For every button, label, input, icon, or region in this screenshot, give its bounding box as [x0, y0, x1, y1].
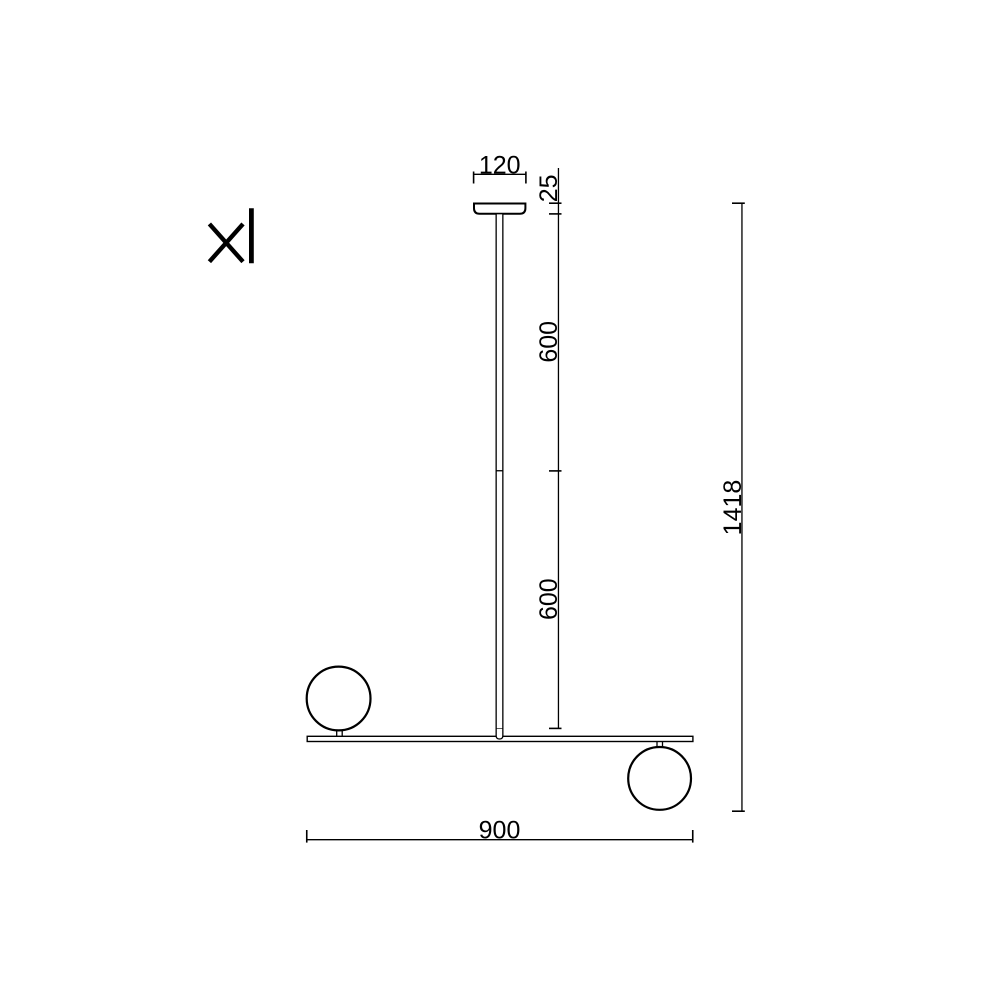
svg-text:600: 600: [535, 321, 563, 363]
svg-text:25: 25: [535, 174, 563, 202]
svg-text:1418: 1418: [719, 480, 747, 536]
svg-text:900: 900: [479, 816, 521, 844]
svg-text:600: 600: [535, 578, 563, 620]
svg-text:120: 120: [479, 151, 521, 179]
